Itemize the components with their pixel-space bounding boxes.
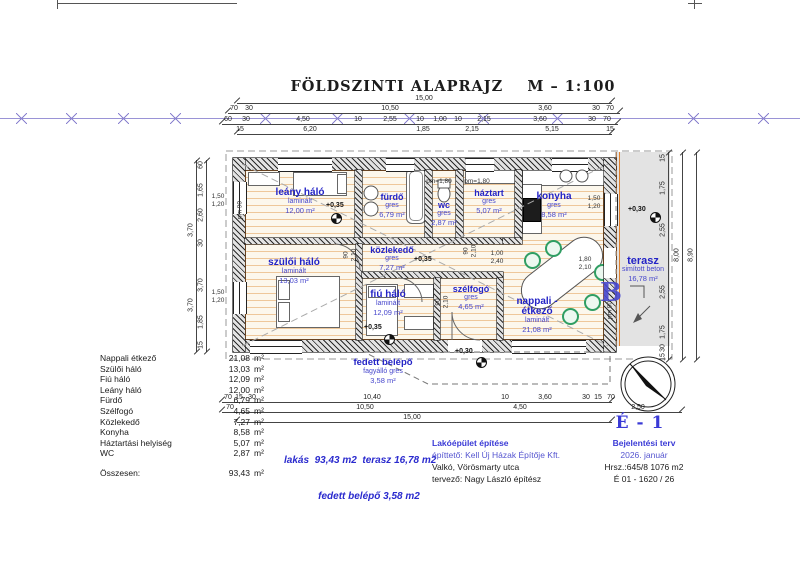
dim-label: 4,50: [513, 404, 527, 411]
total-value: 93,43: [220, 468, 250, 479]
dim-label: 30: [198, 239, 205, 247]
room-name: szélfogó: [453, 284, 490, 294]
dim-label: 15: [660, 154, 667, 162]
area-table-row: WC 2,87 m²: [100, 448, 270, 459]
room-name-cell: Nappali étkező: [100, 353, 220, 364]
dimension-line: [228, 113, 620, 114]
area-table-row: Szülői háló 13,03 m²: [100, 364, 270, 375]
dim-label: 6,20: [303, 126, 317, 133]
pillow: [337, 174, 347, 194]
door-size-label: 90: [435, 298, 442, 305]
parcel-number: Hrsz.:645/8 1076 m2: [594, 461, 694, 473]
north-compass: [621, 357, 675, 411]
north-compass-ring: [625, 361, 671, 407]
dim-label: 70: [606, 105, 614, 112]
room-area-cell: 13,03: [220, 364, 250, 375]
insulation-line: [619, 152, 620, 346]
chair: [584, 294, 601, 311]
dim-label: 15: [236, 126, 244, 133]
dim-label: 15: [198, 341, 205, 349]
client: építtető: Kell Új Házak Építője Kft.: [432, 449, 560, 461]
window-size-label: 1,20: [212, 201, 225, 208]
boundary-x-mark: [16, 113, 27, 124]
boundary-x-mark: [404, 113, 415, 124]
shelf: [404, 316, 434, 330]
window-size-label: 1,20: [212, 297, 225, 304]
boundary-x-mark: [552, 113, 563, 124]
unit-cell: m²: [250, 427, 270, 438]
window: [233, 282, 247, 314]
room-label-fiu-halo: fiú háló laminált 12,09 m²: [370, 290, 406, 317]
dim-label: 3,60: [533, 116, 547, 123]
parapet-label: pm=1,80: [464, 178, 489, 185]
dimension-line: [222, 402, 612, 403]
room-name: fürdő: [379, 192, 404, 202]
level-point-icon: [331, 213, 342, 224]
sheet-number: É - 1: [616, 413, 665, 433]
room-name: háztart: [474, 188, 504, 198]
room-label-nappali: nappali - étkező laminált 21,08 m²: [508, 297, 566, 334]
room-material: laminált: [508, 317, 566, 325]
dim-label: 30: [242, 116, 250, 123]
level-mark: +0,35: [326, 202, 344, 209]
window-size-label: 1,50: [588, 195, 601, 202]
dim-label: 15,00: [415, 95, 433, 102]
dim-label: 3,70: [198, 278, 205, 292]
window: [512, 340, 586, 354]
dim-label: 70: [607, 394, 615, 401]
area-table-row: Közlekedő 7,27 m²: [100, 417, 270, 428]
dim-label: 15: [606, 126, 614, 133]
unit-cell: m²: [250, 364, 270, 375]
dim-label: 2,60: [198, 208, 205, 222]
room-area: 4,65 m²: [453, 302, 490, 311]
dim-label: 4,50: [296, 116, 310, 123]
level-mark: +0,30: [455, 348, 473, 355]
room-name: terasz: [622, 256, 664, 266]
window-size-label: 1,50: [212, 289, 225, 296]
dim-label: 10,50: [381, 105, 399, 112]
room-label-szelfogo: szélfogó gres 4,65 m²: [453, 284, 490, 311]
level-point-icon: [476, 357, 487, 368]
wall: [355, 170, 362, 238]
dim-label: 2,15: [465, 126, 479, 133]
dim-label: 8,90: [688, 248, 695, 262]
dim-label: 3,70: [188, 298, 195, 312]
room-area: 2,87 m²: [431, 218, 456, 227]
area-table-row: Szélfogó 4,65 m²: [100, 406, 270, 417]
room-material: laminált: [276, 198, 325, 206]
dim-label: 10: [416, 116, 424, 123]
doc-type: Bejelentési terv: [594, 437, 694, 449]
drawing-title: FÖLDSZINTI ALAPRAJZ M – 1:100: [290, 78, 615, 95]
area-table-row: Fürdő 6,79 m²: [100, 395, 270, 406]
dim-label: 30: [582, 394, 590, 401]
wall: [497, 278, 503, 340]
wall: [503, 238, 522, 244]
window: [386, 158, 414, 172]
fold-mark: [57, 0, 58, 9]
parapet-label: pm 90: [237, 201, 244, 219]
window-size-label: 1,50: [212, 193, 225, 200]
room-material: gres: [453, 294, 490, 302]
date: 2026. január: [594, 449, 694, 461]
boundary-x-mark: [758, 113, 769, 124]
dim-label: 30: [660, 344, 667, 352]
unit-cell: m²: [250, 385, 270, 396]
room-area-cell: 21,08: [220, 353, 250, 364]
level-point-icon: [650, 212, 661, 223]
dim-label: 2,55: [660, 285, 667, 299]
room-area: 3,58 m²: [353, 376, 412, 385]
room-material: gres: [370, 255, 414, 263]
dim-label: 30: [245, 105, 253, 112]
door-size-label: 2,10: [579, 264, 592, 271]
reference-number: É 01 - 1620 / 26: [594, 473, 694, 485]
room-label-wc: wc gres 2,87 m²: [431, 200, 456, 227]
room-label-haztart: háztart gres 5,07 m²: [474, 188, 504, 215]
area-summary: lakás 93,43 m2 terasz 16,78 m2 fedett be…: [284, 431, 454, 527]
area-table-rows: Nappali étkező 21,08 m² Szülői háló 13,0…: [100, 353, 270, 459]
room-name: wc: [431, 200, 456, 210]
unit-cell: m²: [250, 406, 270, 417]
dim-label: 1,75: [660, 181, 667, 195]
window-size-label: 1,20: [588, 203, 601, 210]
area-table-row: Fiú háló 12,09 m²: [100, 374, 270, 385]
room-label-terasz: terasz simított beton 16,78 m²: [622, 256, 664, 283]
room-label-fedett-belepo: fedett belépő fagyálló gres 3,58 m²: [353, 358, 412, 385]
dim-label: 15,00: [403, 414, 421, 421]
dimension-line: [237, 103, 612, 104]
room-label-kozlekedo: közlekedő gres 7,27 m²: [370, 245, 414, 272]
unit-cell: m²: [250, 353, 270, 364]
room-area: 8,58 m²: [536, 210, 571, 219]
dim-label: 5,15: [545, 126, 559, 133]
summary-line2: fedett belépő 3,58 m2: [284, 491, 454, 503]
total-unit: m²: [250, 468, 270, 479]
unit-cell: m²: [250, 395, 270, 406]
door-size-label: 1,80: [579, 256, 592, 263]
level-mark: +0,30: [628, 206, 646, 213]
area-table-row: Leány háló 12,00 m²: [100, 385, 270, 396]
dim-label: 2,55: [660, 223, 667, 237]
dim-label: 10: [354, 116, 362, 123]
boundary-x-mark: [170, 113, 181, 124]
dimension-line: [237, 422, 612, 423]
titleblock-left: Lakóépület építése építtető: Kell Új Ház…: [432, 437, 560, 485]
dim-label: 10: [454, 116, 462, 123]
parapet-label: pm 90: [607, 301, 614, 319]
room-name-cell: Közlekedő: [100, 417, 220, 428]
room-area-cell: 12,09: [220, 374, 250, 385]
room-name: konyha: [536, 192, 571, 202]
dim-label: 1,00: [433, 116, 447, 123]
dim-label: 3,60: [538, 105, 552, 112]
furniture-size-label: 1,00: [491, 250, 504, 257]
dim-label: 70: [603, 116, 611, 123]
boundary-x-mark: [66, 113, 77, 124]
dimension-line: [222, 412, 682, 413]
furniture-size-label: 2,40: [491, 258, 504, 265]
door-size-label: 2,10: [351, 249, 358, 262]
room-material: laminált: [370, 300, 406, 308]
dim-label: 1,85: [416, 126, 430, 133]
window: [552, 158, 588, 172]
designer: tervező: Nagy László építész: [432, 473, 560, 485]
terrace-door-opening: [604, 248, 616, 278]
dim-label: 10,50: [356, 404, 374, 411]
dim-label: 3,60: [538, 394, 552, 401]
room-area-cell: 7,27: [220, 417, 250, 428]
unit-cell: m²: [250, 374, 270, 385]
dim-label: 15: [594, 394, 602, 401]
dim-label: 1,65: [198, 183, 205, 197]
room-area-cell: 5,07: [220, 438, 250, 449]
address: Valkó, Vörösmarty utca: [432, 461, 560, 473]
dim-label: 1,75: [660, 325, 667, 339]
level-mark: +0,35: [414, 256, 432, 263]
dim-label: 70: [230, 105, 238, 112]
room-label-konyha: konyha gres 8,58 m²: [536, 192, 571, 219]
room-name-cell: Fiú háló: [100, 374, 220, 385]
room-area-cell: 4,65: [220, 406, 250, 417]
dim-label: 2,50: [631, 404, 645, 411]
pillow: [278, 302, 290, 322]
window: [604, 194, 618, 226]
wall: [515, 170, 522, 238]
room-area: 5,07 m²: [474, 206, 504, 215]
wall: [362, 272, 503, 278]
window: [250, 340, 302, 354]
compass-needle: [630, 364, 666, 400]
room-material: laminált: [268, 268, 320, 276]
compass-needle-line: [630, 364, 666, 400]
floor-plan-sheet: FÖLDSZINTI ALAPRAJZ M – 1:100: [0, 0, 800, 566]
door-size-label: 90: [343, 251, 350, 258]
room-name: fiú háló: [370, 290, 406, 300]
total-label: Összesen:: [100, 468, 220, 479]
area-table-row: Háztartási helyiség 5,07 m²: [100, 438, 270, 449]
area-table: Nappali étkező 21,08 m² Szülői háló 13,0…: [100, 353, 270, 479]
room-area: 6,79 m²: [379, 210, 404, 219]
dim-label: 10: [501, 394, 509, 401]
room-area-cell: 2,87: [220, 448, 250, 459]
chair: [545, 240, 562, 257]
boundary-x-mark: [688, 113, 699, 124]
room-name-cell: Leány háló: [100, 385, 220, 396]
dim-label: 10,40: [363, 394, 381, 401]
room-name-cell: Háztartási helyiség: [100, 438, 220, 449]
boundary-x-mark: [332, 113, 343, 124]
desk: [404, 284, 434, 298]
area-table-total: Összesen: 93,43 m²: [100, 468, 270, 479]
wall: [245, 238, 503, 244]
level-point-icon: [384, 334, 395, 345]
dim-label: 3,70: [188, 223, 195, 237]
dim-label: 8,00: [674, 248, 681, 262]
dim-label: 30: [588, 116, 596, 123]
boundary-x-mark: [118, 113, 129, 124]
wall: [456, 170, 463, 238]
room-label-leany-halo: leány háló laminált 12,00 m²: [276, 188, 325, 215]
dimension-line: [696, 152, 697, 360]
bathtub: [406, 168, 426, 224]
unit-cell: m²: [250, 417, 270, 428]
wall: [434, 278, 440, 340]
insulation-line: [616, 152, 617, 346]
dimension-line: [668, 152, 669, 360]
room-name: leány háló: [276, 188, 325, 198]
room-material: gres: [431, 210, 456, 218]
area-table-row: Nappali étkező 21,08 m²: [100, 353, 270, 364]
unit-cell: m²: [250, 438, 270, 449]
dimension-line: [237, 134, 612, 135]
dim-label: 2,55: [383, 116, 397, 123]
dimension-line: [222, 124, 618, 125]
room-area: 16,78 m²: [622, 274, 664, 283]
room-material: fagyálló gres: [353, 368, 412, 376]
room-material: gres: [536, 202, 571, 210]
boundary-x-mark: [260, 113, 271, 124]
window: [466, 158, 494, 172]
fold-mark: [694, 0, 695, 9]
room-area: 12,00 m²: [276, 206, 325, 215]
window: [278, 158, 332, 172]
room-material: simított beton: [622, 266, 664, 274]
room-name-cell: Fürdő: [100, 395, 220, 406]
room-name: fedett belépő: [353, 358, 412, 368]
dresser: [248, 172, 280, 186]
room-material: gres: [474, 198, 504, 206]
dim-label: 1,85: [198, 315, 205, 329]
room-name-cell: Konyha: [100, 427, 220, 438]
dim-label: 60: [198, 161, 205, 169]
door-size-label: 90: [463, 247, 470, 254]
door-size-label: 2,10: [443, 296, 450, 309]
fold-mark: [688, 3, 702, 4]
chair: [524, 252, 541, 269]
area-table-row: Konyha 8,58 m²: [100, 427, 270, 438]
level-mark: +0,35: [364, 324, 382, 331]
room-area-cell: 6,79: [220, 395, 250, 406]
room-name-cell: WC: [100, 448, 220, 459]
room-name: közlekedő: [370, 245, 414, 255]
dim-label: 15: [660, 353, 667, 361]
dim-label: 30: [592, 105, 600, 112]
room-label-furdo: fürdő gres 6,79 m²: [379, 192, 404, 219]
unit-cell: m²: [250, 448, 270, 459]
room-name: szülői háló: [268, 258, 320, 268]
room-name-cell: Szélfogó: [100, 406, 220, 417]
titleblock-right: Bejelentési terv 2026. január Hrsz.:645/…: [594, 437, 694, 485]
dim-label: 2,15: [477, 116, 491, 123]
room-name: nappali - étkező: [508, 297, 566, 317]
room-area: 21,08 m²: [508, 325, 566, 334]
summary-line1: lakás 93,43 m2 terasz 16,78 m2: [284, 455, 454, 467]
room-material: gres: [379, 202, 404, 210]
door-size-label: 2,10: [471, 245, 478, 258]
room-area-cell: 8,58: [220, 427, 250, 438]
dimension-line: [206, 160, 207, 352]
room-area: 13,03 m²: [268, 276, 320, 285]
dimension-line: [682, 152, 683, 360]
project-title: Lakóépület építése: [432, 437, 560, 449]
room-area: 7,27 m²: [370, 263, 414, 272]
room-area-cell: 12,00: [220, 385, 250, 396]
room-name-cell: Szülői háló: [100, 364, 220, 375]
room-label-szuloi-halo: szülői háló laminált 13,03 m²: [268, 258, 320, 285]
parapet-label: pm=1,80: [426, 178, 451, 185]
fold-mark: [57, 3, 237, 4]
room-area: 12,09 m²: [370, 308, 406, 317]
dim-label: 60: [224, 116, 232, 123]
